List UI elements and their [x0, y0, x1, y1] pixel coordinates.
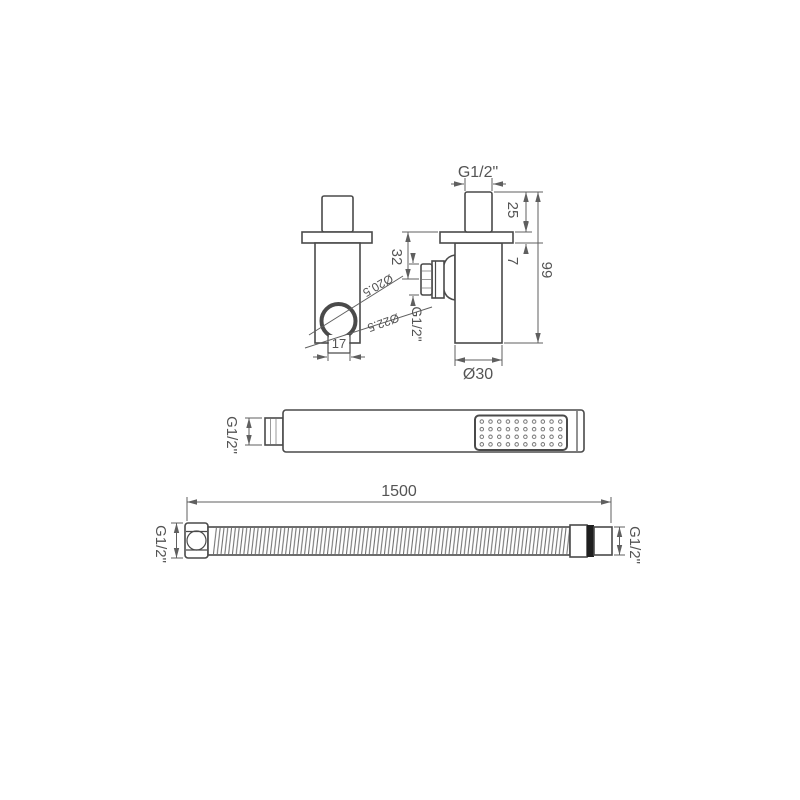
mounting-flange-side — [440, 232, 513, 243]
thread-stub-front — [322, 196, 353, 232]
dim-text-body-dia: Ø30 — [463, 366, 493, 383]
hose-end-right — [594, 527, 612, 555]
dim-hose-length: 1500 — [187, 483, 611, 523]
dim-text-outlet-offset: 32 — [388, 249, 405, 266]
hand-shower-view: G1/2" — [223, 410, 584, 454]
dim-text-hose-right-thread: G1/2" — [626, 526, 643, 564]
dim-text-outlet-thread: G1/2" — [409, 306, 425, 341]
hose-nut-left — [185, 523, 208, 558]
outlet-ring — [432, 261, 444, 298]
hand-shower-inlet — [265, 418, 283, 445]
spray-nozzles — [479, 418, 564, 448]
mounting-flange-front — [302, 232, 372, 243]
hose-sleeve-right — [570, 525, 587, 557]
dim-hose-left-thread: G1/2" — [152, 523, 183, 563]
outlet-body-side — [455, 243, 502, 343]
dim-text-hand-shower-thread: G1/2" — [223, 416, 240, 454]
dim-inlet-thread: G1/2" — [451, 164, 506, 191]
dim-stub-height: 25 — [494, 192, 543, 232]
dim-text-stub-height: 25 — [504, 202, 521, 219]
dim-text-holder-outer-dia: Ø22.5 — [365, 311, 401, 335]
dim-text-hose-left-thread: G1/2" — [152, 525, 169, 563]
dim-text-holder-inner-dia: Ø20.5 — [360, 271, 396, 300]
hose-ribs — [213, 528, 570, 554]
technical-drawing-canvas: 17 Ø20.5 Ø22.5 G1/2" — [0, 0, 800, 800]
dim-text-total-height: 99 — [538, 262, 555, 279]
dim-hose-right-thread: G1/2" — [614, 526, 643, 564]
dim-hand-shower-thread: G1/2" — [223, 416, 262, 454]
dim-text-hose-length: 1500 — [381, 483, 417, 500]
thread-stub-side — [465, 192, 492, 232]
dim-body-dia: Ø30 — [455, 345, 502, 383]
hose-band-right — [587, 525, 594, 557]
wall-outlet-side-view: G1/2" 25 7 99 — [388, 164, 555, 383]
hose-view: 1500 G1/2" G1/2" — [152, 483, 643, 564]
dim-text-flange-thickness: 7 — [504, 257, 521, 265]
